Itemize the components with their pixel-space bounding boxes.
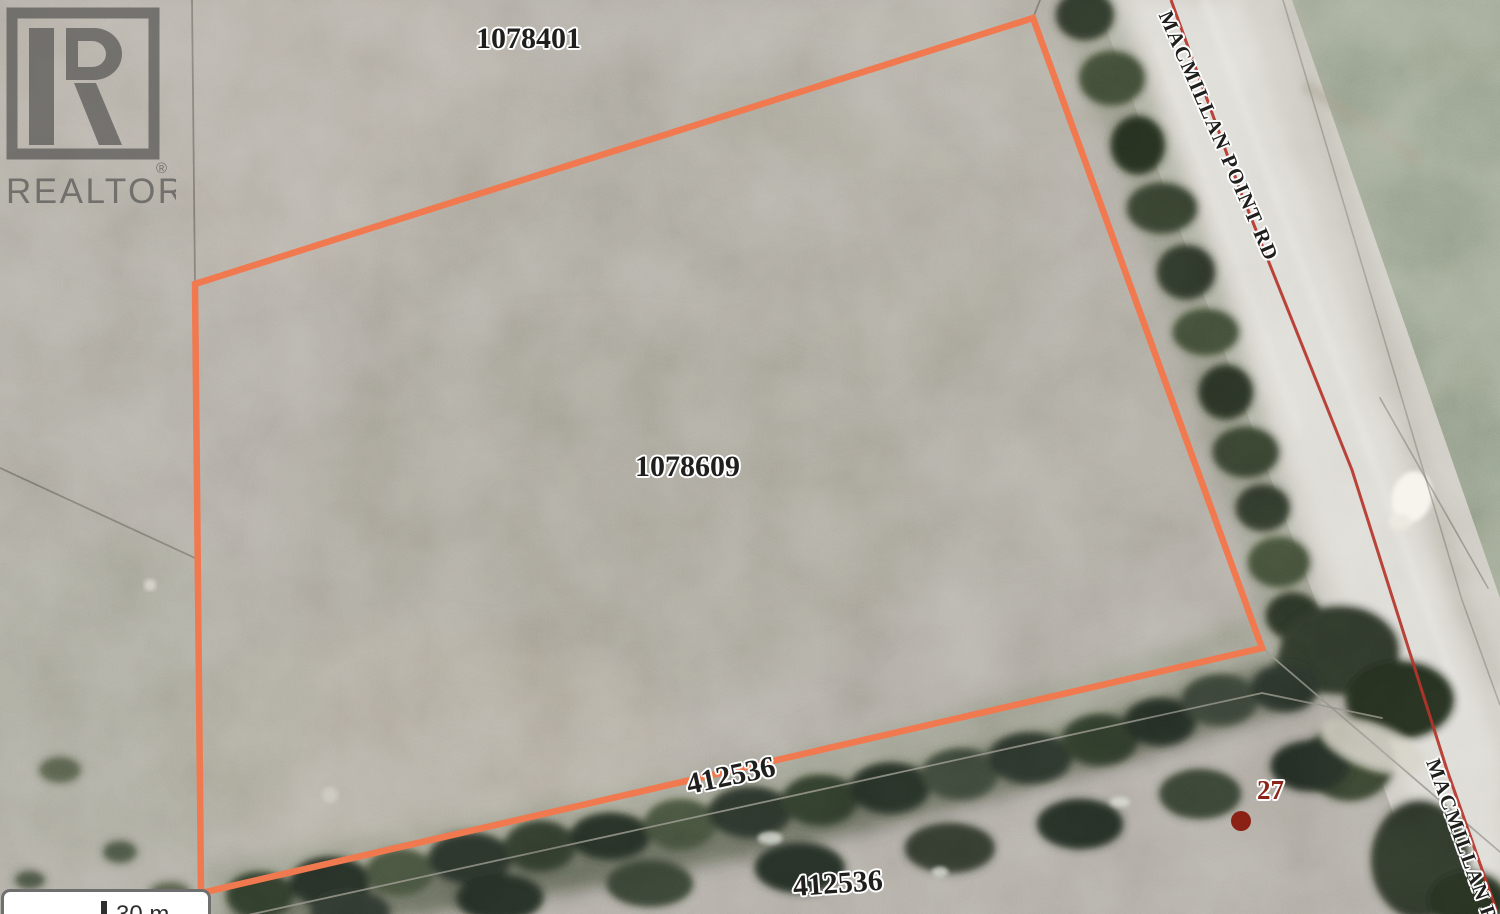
scale-control: 30 m [1,889,211,914]
parcel-label-412536-lower: 412536 [792,866,884,902]
parcel-label-1078609: 1078609 [635,452,740,482]
civic-number-dot [1231,811,1251,831]
scale-bar-label: 30 m [116,903,169,914]
realtor-logo-r [29,28,122,145]
map-canvas[interactable]: 1078401 1078609 412536 412536 MACMILLAN … [0,0,1500,914]
realtor-wordmark: REALTOR [6,172,176,211]
realtor-watermark: REALTOR ® [4,6,176,212]
scale-bar-tick [101,901,107,914]
civic-number-label: 27 [1257,777,1284,804]
parcel-label-1078401: 1078401 [476,24,581,54]
registered-trademark-symbol: ® [156,160,167,177]
